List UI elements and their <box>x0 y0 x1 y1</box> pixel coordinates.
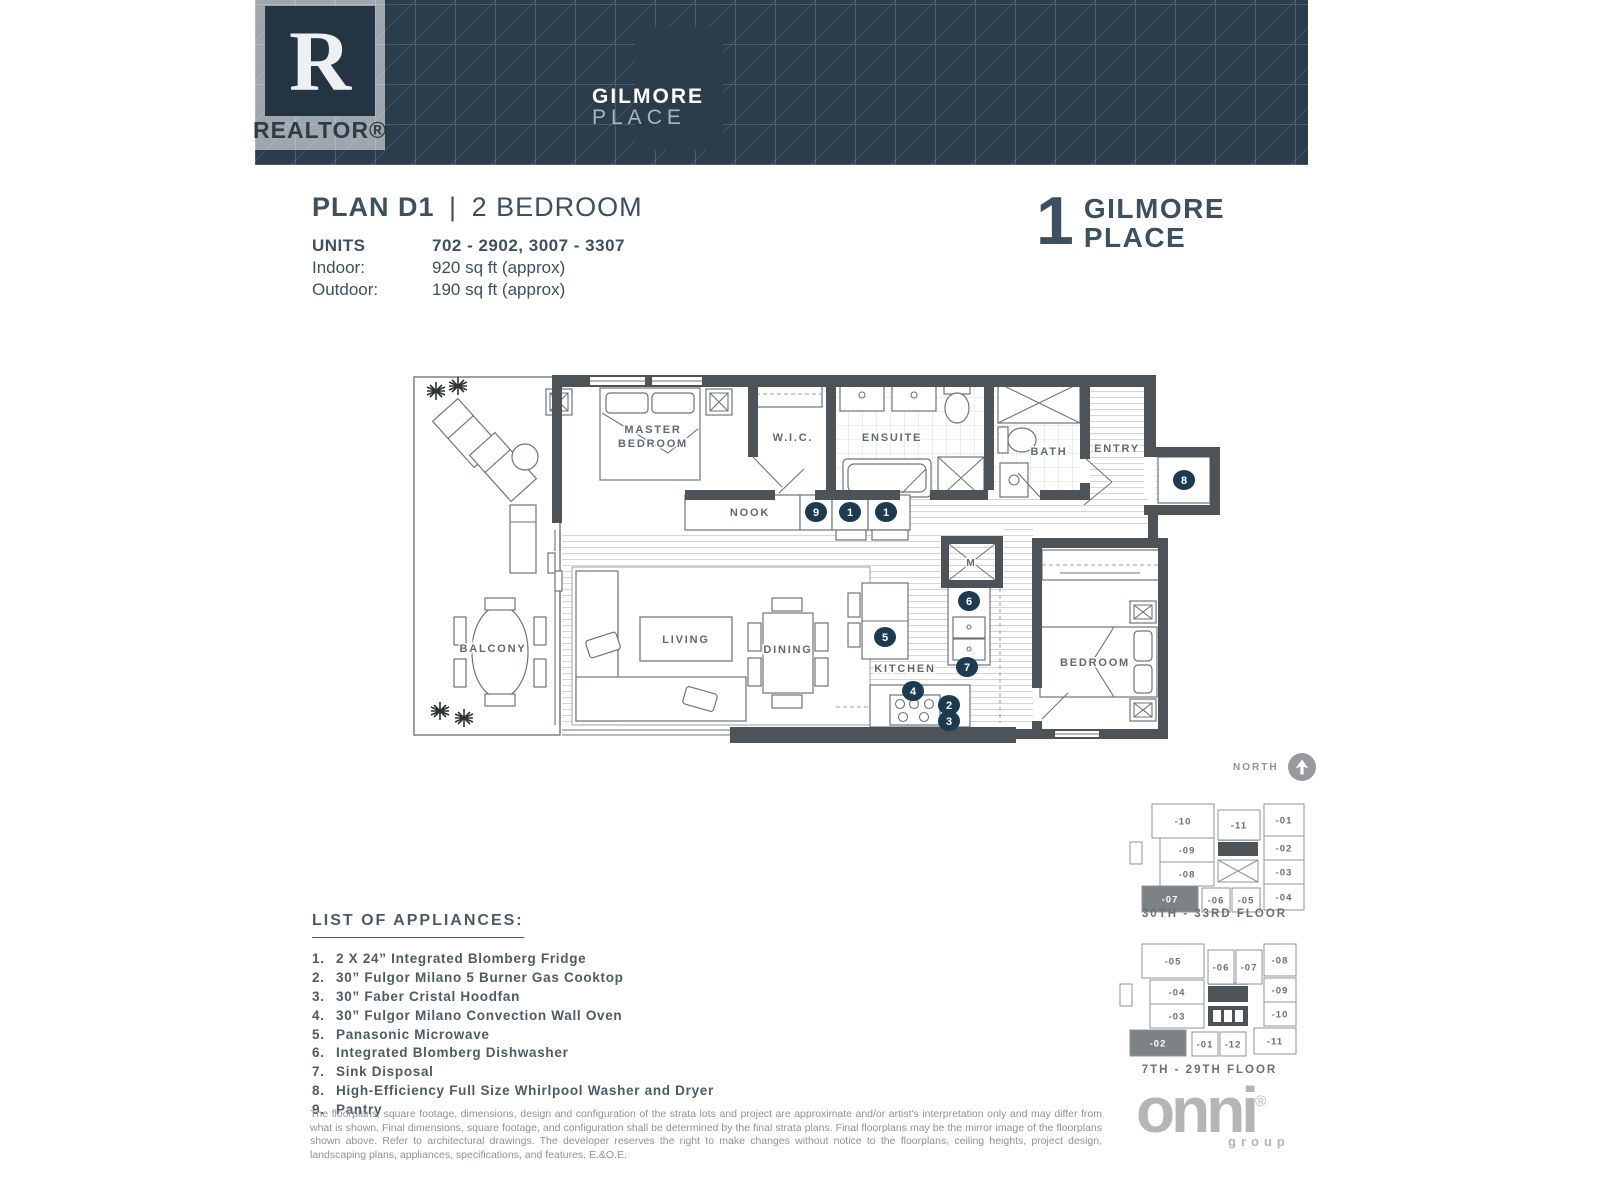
sink <box>953 617 985 638</box>
appliance-item-text: 30” Fulgor Milano 5 Burner Gas Cooktop <box>336 970 624 985</box>
room-label: ENTRY <box>1094 443 1140 455</box>
appliance-list: 1.2 X 24” Integrated Blomberg Fridge2.30… <box>312 950 714 1120</box>
project-name-line1: GILMORE <box>1084 194 1225 223</box>
room-label: DINING <box>763 644 812 656</box>
room-label: M <box>966 558 975 569</box>
keyplan-unit-label: -07 <box>1162 895 1179 906</box>
spec-row-outdoor: Outdoor: 190 sq ft (approx) <box>312 279 625 301</box>
north-label: NORTH <box>1233 762 1279 773</box>
side-table <box>512 444 538 470</box>
project-name-line2: PLACE <box>1084 223 1225 252</box>
appliance-marker-number: 8 <box>1181 475 1187 487</box>
room-label: NOOK <box>730 507 770 519</box>
room-label: BATH <box>1031 446 1068 458</box>
project-name: GILMORE PLACE <box>1084 194 1225 253</box>
realtor-r-letter: R <box>289 18 351 104</box>
keyplan-svg-upper: -10-11-01-09-02-08-03-07-06-05-04 <box>1122 798 1307 913</box>
keyplan-unit-label: -04 <box>1169 988 1186 999</box>
room-label: W.I.C. <box>773 432 814 444</box>
keyplan-unit-label: -07 <box>1241 963 1258 974</box>
onni-group-label: group <box>1228 1134 1316 1149</box>
spec-value: 190 sq ft (approx) <box>432 279 625 301</box>
appliance-marker-number: 4 <box>910 686 917 698</box>
project-logo: 1 GILMORE PLACE <box>1036 190 1225 253</box>
plan-code: PLAN D1 <box>312 192 435 222</box>
appliance-marker-number: 1 <box>883 507 889 519</box>
keyplan-unit-label: -09 <box>1272 986 1289 997</box>
keyplan-unit-label: -06 <box>1208 896 1225 907</box>
keyplan-unit-label: -02 <box>1276 844 1293 855</box>
appliance-item-number: 8. <box>312 1082 336 1101</box>
appliance-marker-number: 7 <box>964 662 970 674</box>
keyplan-unit-label: -11 <box>1231 821 1247 832</box>
room-label: KITCHEN <box>874 663 936 675</box>
realtor-r-icon: R <box>265 6 375 116</box>
appliance-item: 8.High-Efficiency Full Size Whirlpool Wa… <box>312 1082 714 1101</box>
page-title: PLAN D1 | 2 BEDROOM <box>312 192 643 223</box>
appliance-item: 4.30” Fulgor Milano Convection Wall Oven <box>312 1007 714 1026</box>
floorplan-drawing: MASTERBEDROOMW.I.C.ENSUITEBATHENTRYNOOKL… <box>400 355 1220 760</box>
room-label: MASTER <box>624 424 681 436</box>
keyplan-30-33: -10-11-01-09-02-08-03-07-06-05-04 <box>1122 798 1307 918</box>
registered-mark: ® <box>1255 1093 1266 1110</box>
plant-icon <box>449 377 467 395</box>
keyplan-7-29: -05-06-07-08-04-09-03-10-02-01-12-11 <box>1112 938 1307 1065</box>
spec-table: UNITS 702 - 2902, 3007 - 3307 Indoor: 92… <box>312 235 625 301</box>
room-label: ENSUITE <box>862 432 922 444</box>
keyplan-unit-label: -05 <box>1238 896 1255 907</box>
keyplan-svg-lower: -05-06-07-08-04-09-03-10-02-01-12-11 <box>1112 938 1307 1060</box>
keyplan-unit-label: -11 <box>1267 1037 1283 1048</box>
brand-logo: GILMORE PLACE <box>592 86 704 128</box>
appliance-item-text: Integrated Blomberg Dishwasher <box>336 1045 569 1060</box>
brand-line2: PLACE <box>592 107 704 128</box>
appliance-marker-number: 6 <box>966 596 972 608</box>
appliance-item-number: 1. <box>312 950 336 969</box>
keyplan-unit-label: -01 <box>1197 1040 1214 1051</box>
header-banner: GILMORE PLACE <box>255 0 1308 165</box>
appliance-marker-number: 5 <box>882 632 888 644</box>
keyplan-unit-label: -08 <box>1179 870 1196 881</box>
floorplan-sheet: GILMORE PLACE R REALTOR® PLAN D1 | 2 BED… <box>0 0 1600 1200</box>
keyplan-unit-label: -04 <box>1276 893 1293 904</box>
second-bedroom <box>1040 550 1160 721</box>
keyplan-unit-label: -03 <box>1169 1012 1186 1023</box>
toilet <box>945 393 969 423</box>
keyplan-unit-label: -10 <box>1175 817 1192 828</box>
keyplan-unit-label: -09 <box>1179 846 1196 857</box>
appliance-item: 2.30” Fulgor Milano 5 Burner Gas Cooktop <box>312 969 714 988</box>
floorplan-svg: MASTERBEDROOMW.I.C.ENSUITEBATHENTRYNOOKL… <box>400 355 1220 755</box>
appliance-item: 1.2 X 24” Integrated Blomberg Fridge <box>312 950 714 969</box>
appliance-item: 7.Sink Disposal <box>312 1063 714 1082</box>
appliance-item-text: 30” Fulgor Milano Convection Wall Oven <box>336 1008 622 1023</box>
keyplan-unit-label: -05 <box>1165 957 1182 968</box>
appliance-item-text: 2 X 24” Integrated Blomberg Fridge <box>336 951 586 966</box>
appliance-marker-number: 2 <box>946 700 952 712</box>
keyplan-unit-label: -02 <box>1150 1039 1167 1050</box>
room-label: BEDROOM <box>618 438 688 450</box>
brand-line1: GILMORE <box>592 86 704 107</box>
keyplan-unit-label: -08 <box>1272 956 1289 967</box>
spec-row-units: UNITS 702 - 2902, 3007 - 3307 <box>312 235 625 257</box>
plant-icon <box>427 382 445 400</box>
elevator-core <box>1208 986 1248 1002</box>
keyplan-unit-label: -01 <box>1276 816 1293 827</box>
plant-icon <box>431 702 449 720</box>
appliance-title: LIST OF APPLIANCES: <box>312 912 524 938</box>
spec-label: Indoor: <box>312 257 432 279</box>
room-label: BEDROOM <box>1060 657 1130 669</box>
appliance-section: LIST OF APPLIANCES: 1.2 X 24” Integrated… <box>312 912 714 1120</box>
appliance-item: 6.Integrated Blomberg Dishwasher <box>312 1044 714 1063</box>
appliance-marker-number: 1 <box>847 507 853 519</box>
project-number: 1 <box>1036 190 1074 253</box>
title-separator: | <box>443 192 463 222</box>
spec-value: 702 - 2902, 3007 - 3307 <box>432 235 625 257</box>
appliance-item-number: 7. <box>312 1063 336 1082</box>
spec-label: Outdoor: <box>312 279 432 301</box>
appliance-item-text: 30” Faber Cristal Hoodfan <box>336 989 520 1004</box>
realtor-logo: R REALTOR® <box>255 0 385 150</box>
appliance-item-number: 4. <box>312 1007 336 1026</box>
appliance-item-number: 5. <box>312 1026 336 1045</box>
keyplan-unit-label: -12 <box>1225 1040 1242 1051</box>
onni-logo: onni® group <box>1136 1078 1316 1149</box>
appliance-item: 5.Panasonic Microwave <box>312 1026 714 1045</box>
keyplan-unit-label: -06 <box>1213 963 1230 974</box>
realtor-word: REALTOR® <box>253 117 387 144</box>
north-arrow-icon <box>1288 753 1316 781</box>
keyplan-unit-label: -03 <box>1276 868 1293 879</box>
plant-icon <box>455 709 473 727</box>
appliance-item: 3.30” Faber Cristal Hoodfan <box>312 988 714 1007</box>
keyplan-upper-title: 30TH - 33RD FLOOR <box>1122 908 1307 920</box>
room-label: BALCONY <box>460 643 527 655</box>
appliance-item-text: High-Efficiency Full Size Whirlpool Wash… <box>336 1083 714 1098</box>
spec-label: UNITS <box>312 235 432 257</box>
spec-value: 920 sq ft (approx) <box>432 257 625 279</box>
appliance-item-number: 3. <box>312 988 336 1007</box>
plan-type: 2 BEDROOM <box>472 192 643 222</box>
spec-row-indoor: Indoor: 920 sq ft (approx) <box>312 257 625 279</box>
north-indicator: NORTH <box>1233 753 1316 781</box>
elevator-core <box>1218 842 1258 856</box>
appliance-item-number: 6. <box>312 1044 336 1063</box>
appliance-marker-number: 3 <box>946 716 952 728</box>
plan-title-block: PLAN D1 | 2 BEDROOM UNITS 702 - 2902, 30… <box>312 192 643 301</box>
planter <box>510 505 536 573</box>
appliance-item-text: Panasonic Microwave <box>336 1027 490 1042</box>
disclaimer-text: The floorplans, square footage, dimensio… <box>310 1108 1102 1163</box>
keyplan-unit-label: -10 <box>1272 1010 1289 1021</box>
appliance-item-text: Sink Disposal <box>336 1064 434 1079</box>
appliance-item-number: 2. <box>312 969 336 988</box>
room-label: LIVING <box>662 634 709 646</box>
balcony <box>414 377 560 735</box>
appliance-marker-number: 9 <box>813 507 819 519</box>
